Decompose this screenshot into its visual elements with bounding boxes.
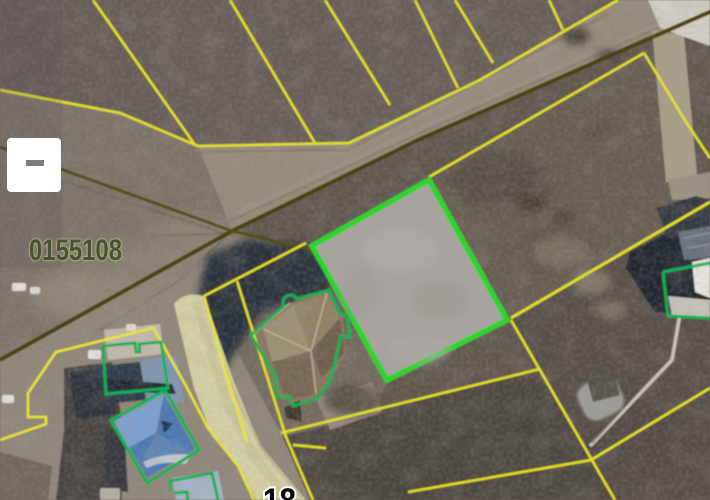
svg-text:0155108: 0155108: [29, 234, 122, 267]
svg-text:18: 18: [263, 482, 296, 500]
